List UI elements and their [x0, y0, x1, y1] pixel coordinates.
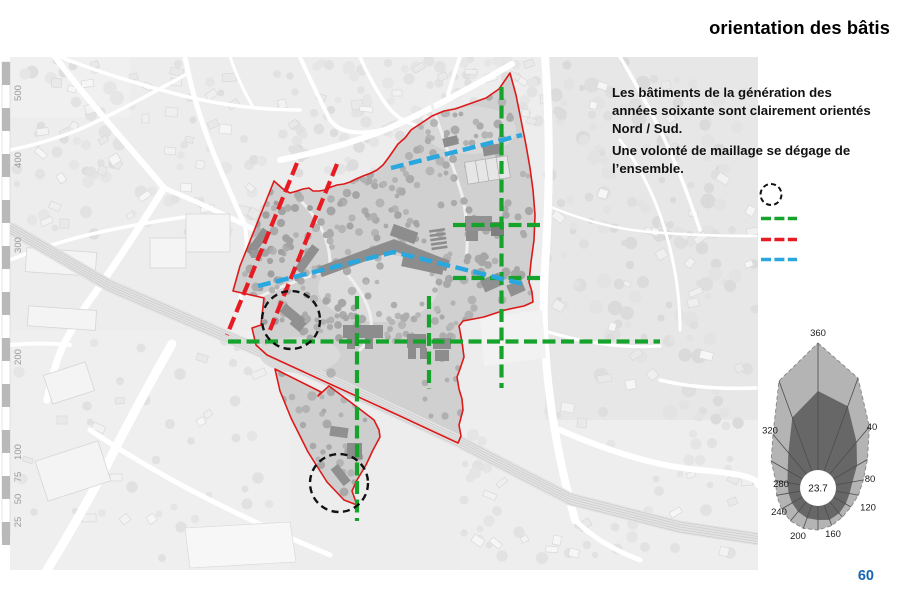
- svg-text:160: 160: [825, 529, 841, 540]
- svg-text:80: 80: [865, 474, 876, 485]
- svg-text:50: 50: [13, 494, 24, 505]
- svg-text:75: 75: [13, 472, 24, 483]
- svg-text:100: 100: [13, 444, 24, 460]
- svg-text:360: 360: [810, 328, 826, 339]
- svg-text:400: 400: [13, 152, 24, 168]
- svg-text:25: 25: [13, 517, 24, 528]
- svg-text:40: 40: [867, 422, 878, 433]
- svg-text:200: 200: [13, 349, 24, 365]
- svg-text:320: 320: [762, 426, 778, 437]
- svg-text:280: 280: [773, 479, 789, 490]
- svg-text:240: 240: [771, 507, 787, 518]
- svg-text:120: 120: [860, 503, 876, 514]
- svg-text:200: 200: [790, 531, 806, 542]
- svg-text:23.7: 23.7: [808, 484, 828, 495]
- svg-text:300: 300: [13, 237, 24, 253]
- svg-text:500: 500: [13, 85, 24, 101]
